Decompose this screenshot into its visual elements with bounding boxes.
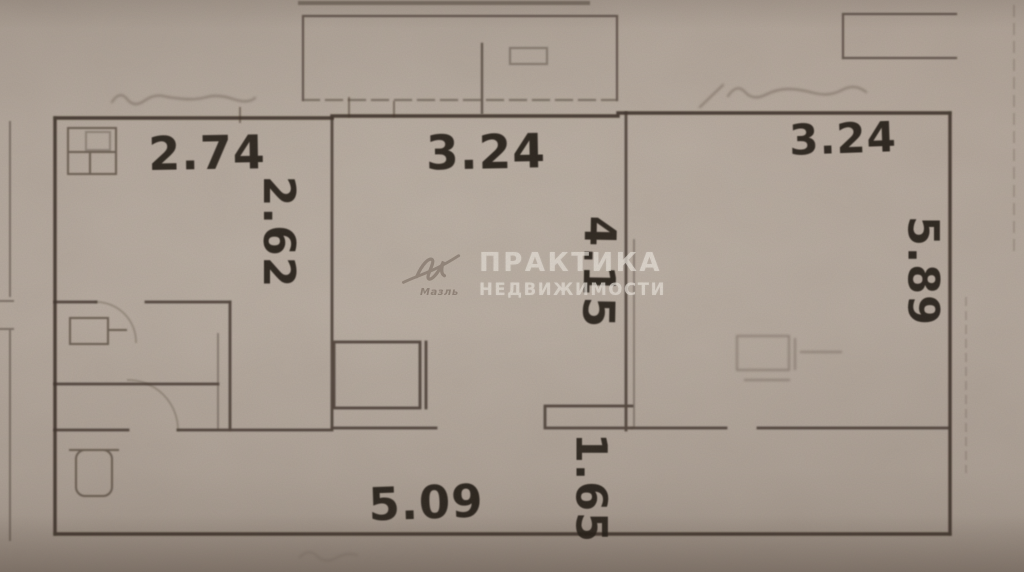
dimension-label-right-room-width: 3.24: [788, 116, 897, 162]
dimension-label-hall-width: 5.09: [368, 479, 485, 528]
fixture-symbols: [68, 128, 178, 496]
furniture-sketch: [737, 336, 842, 380]
washbasin-icon: [70, 318, 108, 344]
agency-logo-caption: Мазль: [420, 287, 464, 298]
agency-name-line1: ПРАКТИКА: [479, 250, 666, 277]
agency-logo: Мазль: [400, 250, 464, 298]
floorplan-photo: 2.74 2.62 3.24 4.15 3.24 5.89 5.09 1.65 …: [0, 0, 1024, 572]
handwritten-annotation-left: [112, 95, 255, 104]
agency-name: ПРАКТИКА НЕДВИЖИМОСТИ: [479, 250, 666, 299]
door-swing-icon: [96, 302, 136, 342]
dimension-label-left-room-width: 2.74: [148, 129, 266, 177]
agency-name-line2: НЕДВИЖИМОСТИ: [479, 280, 666, 299]
door-swing-icon: [128, 380, 178, 430]
balcony-outline: [303, 14, 956, 113]
dimension-label-center-room-width: 3.24: [426, 128, 547, 177]
handwritten-annotation-right: [700, 85, 723, 107]
agency-logo-icon: [400, 250, 464, 290]
dimension-label-left-room-depth: 2.62: [256, 176, 300, 289]
handwritten-annotation-right: [728, 87, 866, 97]
dimension-label-right-room-depth: 5.89: [901, 216, 944, 326]
agency-watermark: Мазль ПРАКТИКА НЕДВИЖИМОСТИ: [400, 250, 666, 299]
dimension-label-hall-depth: 1.65: [569, 433, 612, 543]
toilet-icon: [76, 450, 112, 496]
